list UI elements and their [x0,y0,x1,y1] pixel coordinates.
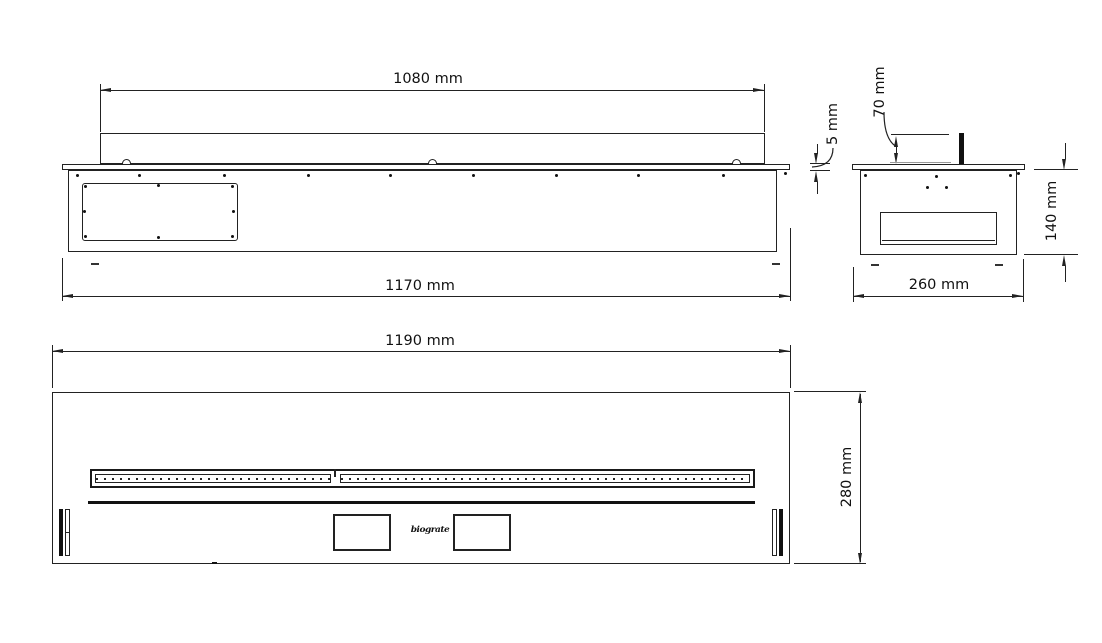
panel-screw [231,185,234,188]
arrowhead-right [1012,294,1023,298]
glass-groove-line [88,501,755,504]
extension-line [52,345,53,388]
foot-mark [871,264,879,266]
dimension-line [52,351,790,352]
slot-divider-tab [334,469,336,477]
burner-slot-segment [95,474,331,483]
arrowhead-up [1062,255,1066,266]
mounting-flange-side [852,164,1025,170]
center-tick [212,562,217,564]
arrowhead-left [62,294,73,298]
plan-depth-label: 280 mm [839,427,855,527]
extension-line [100,84,101,132]
screw-dot [307,174,310,177]
panel-screw [157,184,160,187]
igniter-pin [959,133,964,165]
screw-dot [935,175,938,178]
panel-screw [84,235,87,238]
brand-logo: biograte [405,525,455,534]
left-bracket-bar [59,509,63,556]
arrowhead-left [52,349,63,353]
screw-dot [864,174,867,177]
screw-dot [555,174,558,177]
screw-dot [76,174,79,177]
arrow-stem [1065,266,1066,282]
front-top-width-label: 1080 mm [368,71,488,87]
access-panel [82,183,238,241]
extension-line [764,84,765,132]
extension-line [1024,254,1078,255]
screw-dot [389,174,392,177]
leader-line [800,140,840,180]
panel-screw [83,210,86,213]
extension-line [794,391,866,392]
screw-dot [1009,174,1012,177]
mounting-flange-front [62,164,790,170]
dimension-line [860,394,861,562]
panel-screw [232,210,235,213]
dimension-line [100,90,764,91]
extension-line [790,345,791,388]
arrowhead-right [779,349,790,353]
plan-length-label: 1190 mm [360,333,480,349]
extension-line [853,267,854,302]
extension-line [790,228,791,301]
burner-top-reference-line [891,134,949,135]
screw-dot [138,174,141,177]
dimension-line [853,296,1023,297]
panel-screw [157,236,160,239]
leader-line [870,105,910,155]
screw-dot [637,174,640,177]
panel-screw [231,235,234,238]
front-overall-width-label: 1170 mm [360,278,480,294]
arrow-stem [1065,143,1066,159]
arrowhead-right [779,294,790,298]
arrowhead-down [858,553,862,564]
arrowhead-left [100,88,111,92]
foot-mark [772,263,780,265]
screw-dot [784,172,787,175]
screw-dot [223,174,226,177]
opening-inner-line [882,240,995,241]
technical-drawing: 1080 mm [0,0,1102,643]
burner-slot-segment [340,474,750,483]
screw-dot [722,174,725,177]
dimension-line [62,296,790,297]
arrowhead-up [858,392,862,403]
panel-screw [84,185,87,188]
arrow-stem [817,182,818,194]
bracket-tick [65,532,70,533]
control-box-left [333,514,391,551]
screw-dot [472,174,475,177]
screw-dot [926,186,929,189]
depth-label: 260 mm [879,277,999,293]
extension-line [1023,259,1024,302]
arrowhead-down [1062,159,1066,170]
foot-mark [91,263,99,265]
right-bracket-outline [772,509,777,556]
extension-line [794,563,866,564]
screw-dot [945,186,948,189]
foot-mark [995,264,1003,266]
arrowhead-right [753,88,764,92]
extension-line [1034,169,1078,170]
arrowhead-left [853,294,864,298]
screw-dot [1017,172,1020,175]
extension-line [62,258,63,301]
control-box-right [453,514,511,551]
right-bracket-bar [779,509,783,556]
body-height-label: 140 mm [1044,161,1060,261]
